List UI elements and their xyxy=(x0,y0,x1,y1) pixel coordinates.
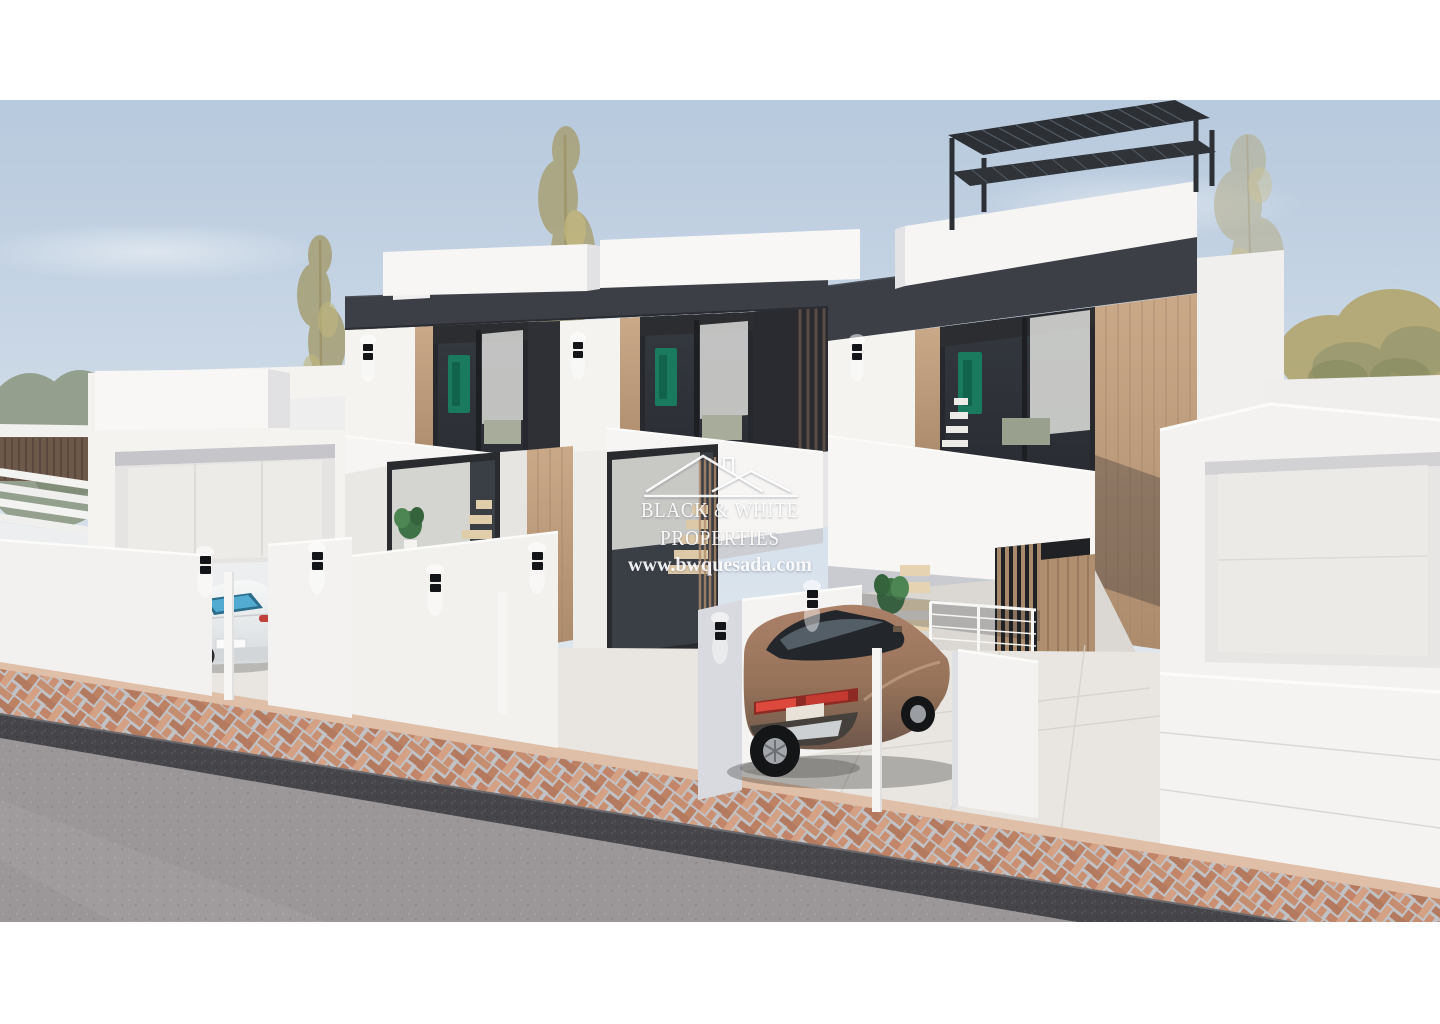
render-photo-svg: BLACK & WHITE PROPERTIES www.bwquesada.c… xyxy=(0,0,1440,1024)
vanity-cabinet xyxy=(484,420,521,444)
watermark-brand-line-1: BLACK & WHITE xyxy=(641,498,799,522)
gate-post xyxy=(498,592,507,714)
vanity-cabinet xyxy=(702,415,742,440)
wood-side-fence xyxy=(1040,554,1095,668)
screenshot-root: BLACK & WHITE PROPERTIES www.bwquesada.c… xyxy=(0,0,1440,1024)
left-neighbor-house xyxy=(88,365,345,566)
roof-box xyxy=(383,244,587,296)
vanity-cabinet xyxy=(1002,418,1050,445)
side-mirror xyxy=(893,626,902,632)
watermark-website: www.bwquesada.com xyxy=(628,555,812,576)
courtyard-wall xyxy=(352,532,558,748)
courtyard-wall xyxy=(958,650,1038,818)
garage-door xyxy=(1205,452,1440,668)
wood-pillar xyxy=(915,327,940,458)
courtyard-wall xyxy=(268,538,352,718)
rooftop-box xyxy=(95,369,268,430)
watermark-brand-line-2: PROPERTIES xyxy=(660,526,780,550)
